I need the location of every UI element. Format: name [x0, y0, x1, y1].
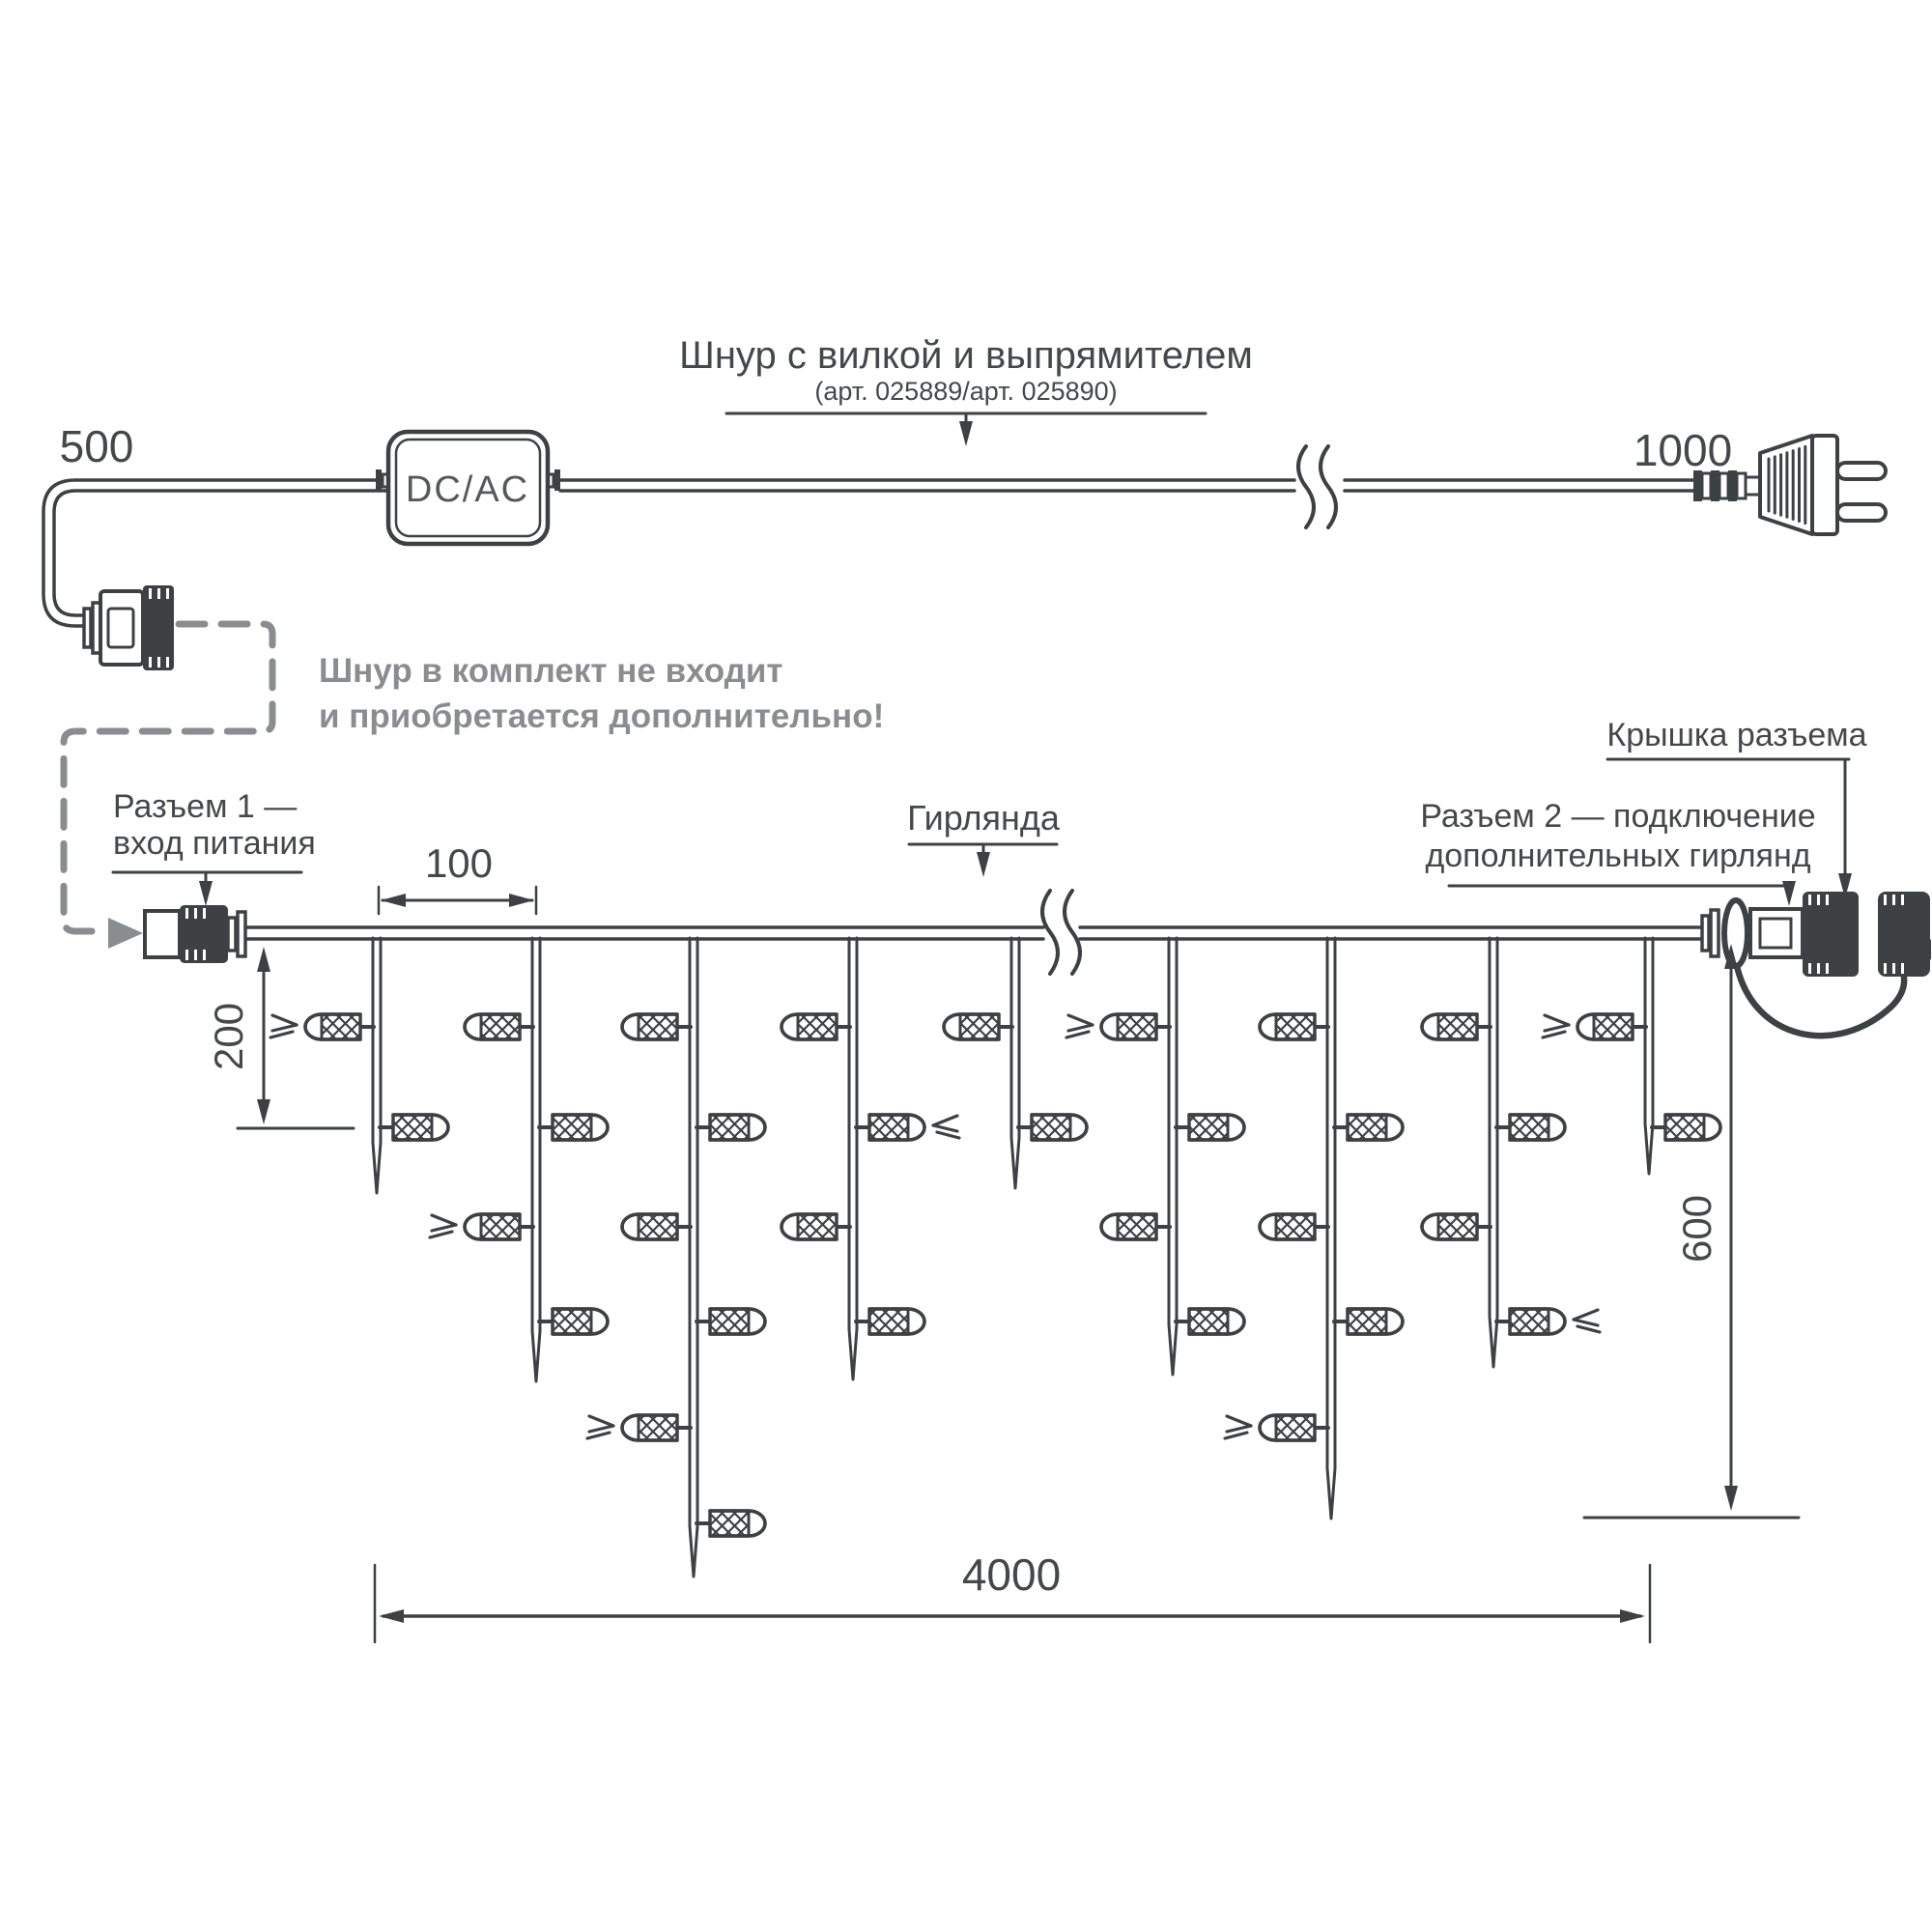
title-line2: (арт. 025889/арт. 025890)	[814, 377, 1117, 406]
connector2-label-line1: Разъем 2 — подключение	[1420, 798, 1815, 835]
garland-label: Гирлянда	[907, 798, 1061, 838]
dim-100-label: 100	[425, 840, 493, 886]
title-line1: Шнур с вилкой и выпрямителем	[679, 334, 1253, 377]
note-line2: и приобретается дополнительно!	[319, 697, 884, 735]
cap-label: Крышка разъема	[1606, 717, 1866, 753]
diagram-linework	[43, 413, 1931, 1642]
dim-600-label: 600	[1674, 1195, 1719, 1263]
dim-4000-label: 4000	[962, 1549, 1061, 1600]
note-line1: Шнур в комплект не входит	[319, 652, 783, 690]
cord-right-length-label: 1000	[1634, 425, 1732, 475]
connector1-label-line2: вход питания	[113, 825, 316, 862]
garland-wiring-diagram: 500 Шнур с вилкой и выпрямителем (арт. 0…	[0, 0, 1932, 1932]
diagram-canvas: 500 Шнур с вилкой и выпрямителем (арт. 0…	[0, 0, 1932, 1932]
dim-200-label: 200	[206, 1003, 251, 1070]
connector1-label-line1: Разъем 1 —	[113, 788, 297, 825]
connector2-label-line2: дополнительных гирлянд	[1425, 838, 1810, 874]
cord-left-length-label: 500	[60, 421, 134, 471]
dcac-converter-label: DC/AC	[406, 469, 529, 510]
